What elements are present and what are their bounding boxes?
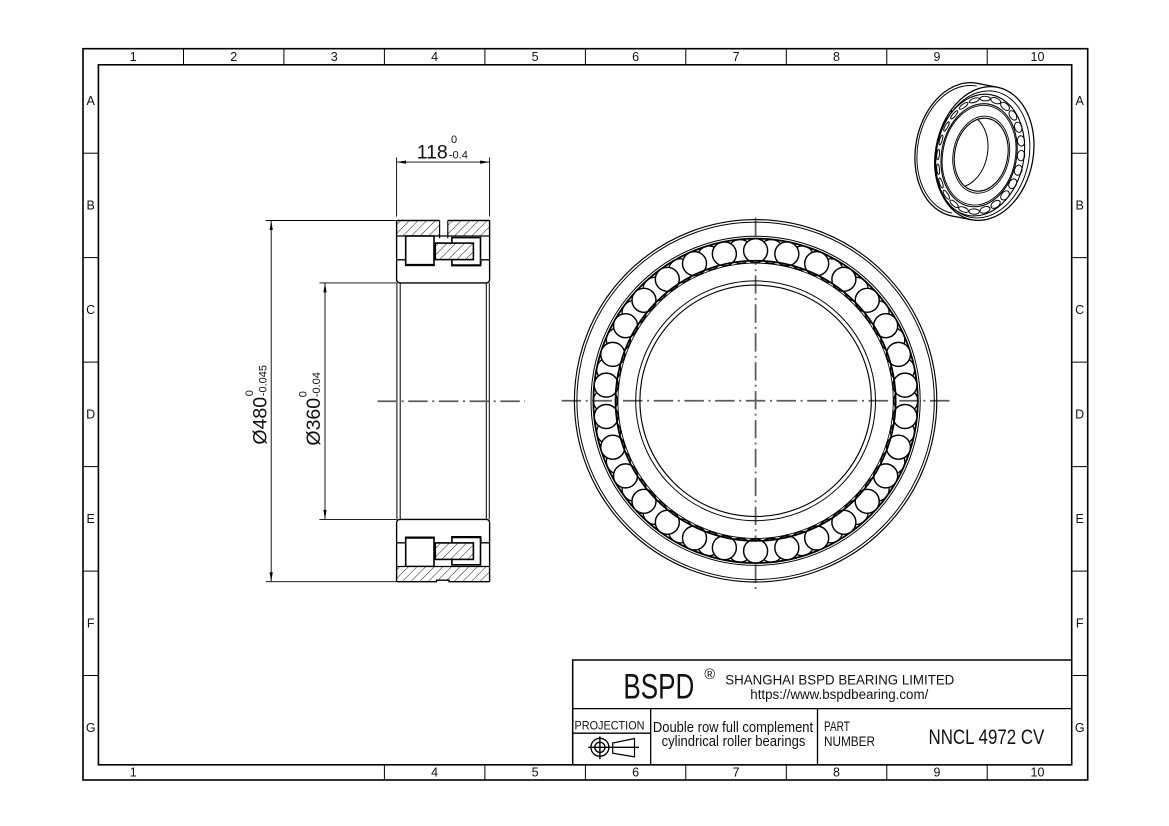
svg-text:-0.04: -0.04 (311, 372, 323, 397)
svg-text:E: E (87, 512, 95, 526)
svg-text:8: 8 (833, 766, 840, 780)
svg-text:0: 0 (297, 391, 309, 397)
svg-text:E: E (1076, 512, 1084, 526)
svg-text:4: 4 (431, 766, 438, 780)
svg-text:9: 9 (934, 50, 941, 64)
svg-text:7: 7 (733, 766, 740, 780)
svg-text:0: 0 (451, 134, 457, 146)
svg-text:7: 7 (733, 50, 740, 64)
svg-text:F: F (1076, 617, 1084, 631)
svg-text:C: C (86, 303, 95, 317)
svg-text:4: 4 (431, 50, 438, 64)
svg-text:PART: PART (824, 719, 850, 735)
svg-text:B: B (87, 199, 95, 213)
svg-text:5: 5 (532, 766, 539, 780)
svg-text:Ø480: Ø480 (250, 397, 272, 445)
svg-text:-0.4: -0.4 (449, 149, 468, 161)
svg-text:A: A (1076, 94, 1085, 108)
svg-text:6: 6 (632, 50, 639, 64)
svg-text:G: G (1075, 721, 1085, 735)
svg-text:NUMBER: NUMBER (824, 734, 875, 750)
svg-text:-0.045: -0.045 (258, 365, 270, 396)
svg-text:3: 3 (331, 50, 338, 64)
svg-text:5: 5 (532, 50, 539, 64)
svg-text:PROJECTION: PROJECTION (575, 718, 645, 732)
svg-text:SHANGHAI BSPD BEARING LIMITED: SHANGHAI BSPD BEARING LIMITED (725, 672, 954, 687)
svg-text:1: 1 (130, 50, 137, 64)
svg-text:cylindrical roller bearings: cylindrical roller bearings (662, 733, 806, 750)
svg-text:0: 0 (244, 390, 256, 396)
svg-text:10: 10 (1031, 766, 1045, 780)
svg-text:®: ® (704, 667, 715, 683)
svg-text:C: C (1075, 303, 1084, 317)
svg-text:BSPD: BSPD (623, 667, 694, 706)
svg-text:D: D (86, 408, 95, 422)
svg-text:118: 118 (417, 141, 448, 163)
svg-text:2: 2 (230, 50, 237, 64)
svg-text:F: F (87, 617, 95, 631)
svg-text:9: 9 (934, 766, 941, 780)
svg-text:A: A (87, 94, 96, 108)
svg-text:Ø360: Ø360 (303, 398, 325, 446)
svg-text:G: G (86, 721, 96, 735)
svg-text:NNCL 4972 CV: NNCL 4972 CV (929, 724, 1045, 749)
svg-text:B: B (1076, 199, 1084, 213)
svg-text:D: D (1075, 408, 1084, 422)
svg-text:8: 8 (833, 50, 840, 64)
svg-text:6: 6 (632, 766, 639, 780)
svg-text:https://www.bspdbearing.com/: https://www.bspdbearing.com/ (750, 687, 928, 702)
svg-text:10: 10 (1031, 50, 1045, 64)
svg-text:1: 1 (130, 766, 137, 780)
